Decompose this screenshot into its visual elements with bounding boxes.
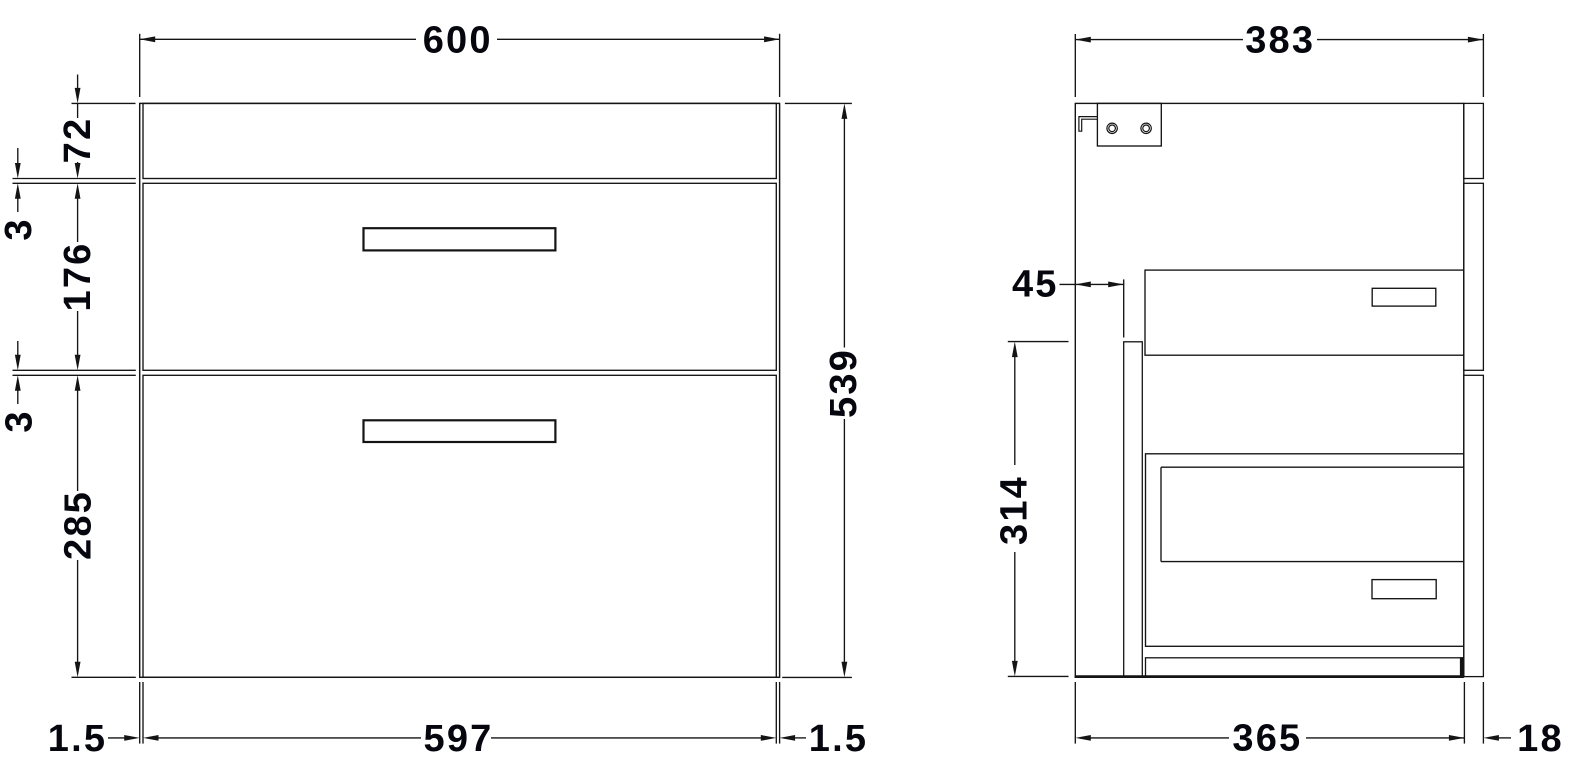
svg-text:365: 365 (1232, 717, 1302, 759)
svg-text:1.5: 1.5 (48, 718, 107, 760)
svg-text:18: 18 (1517, 718, 1564, 760)
svg-text:314: 314 (993, 475, 1035, 545)
svg-text:383: 383 (1245, 20, 1315, 62)
svg-text:45: 45 (1012, 263, 1059, 305)
svg-text:600: 600 (423, 20, 493, 62)
svg-text:176: 176 (57, 241, 99, 311)
svg-text:285: 285 (58, 490, 100, 560)
svg-text:539: 539 (823, 348, 865, 418)
svg-text:597: 597 (423, 718, 493, 760)
svg-text:1.5: 1.5 (809, 718, 868, 760)
svg-text:3: 3 (0, 409, 41, 432)
svg-text:72: 72 (57, 117, 99, 164)
svg-text:3: 3 (0, 217, 40, 240)
